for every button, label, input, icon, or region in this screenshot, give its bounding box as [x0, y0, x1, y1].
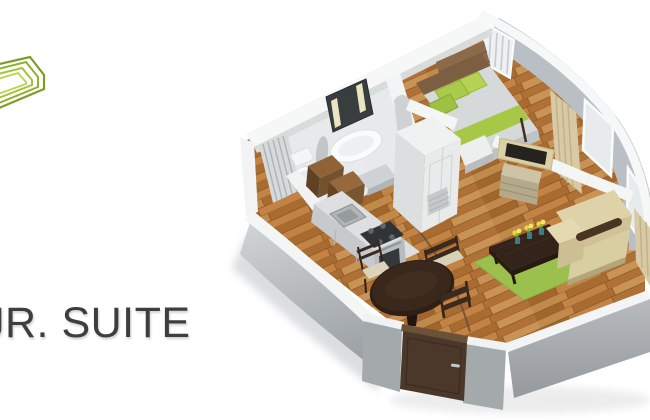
wardrobe	[393, 116, 461, 233]
page: JR. SUITE	[0, 0, 650, 420]
floor-plan	[0, 0, 650, 420]
door-wall-right	[463, 343, 506, 410]
door-wall-left	[362, 320, 402, 392]
entrance-door	[400, 324, 468, 401]
